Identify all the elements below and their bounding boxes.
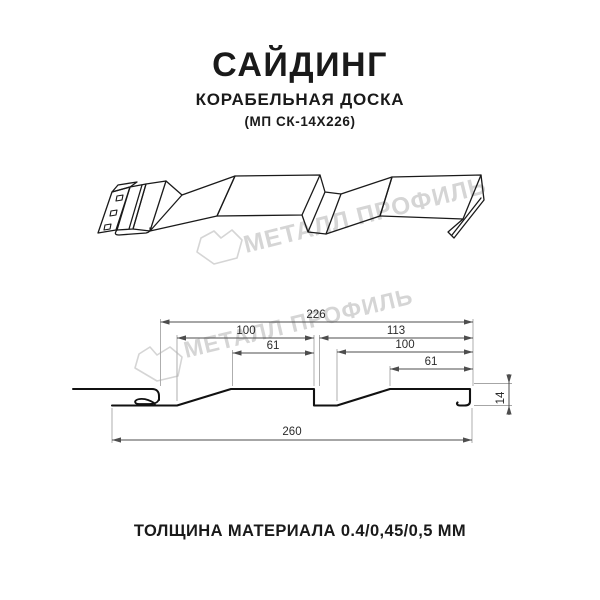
label-board1-100: 100 <box>236 325 255 337</box>
panel-outline <box>112 389 470 406</box>
product-subtitle: КОРАБЕЛЬНАЯ ДОСКА <box>0 91 600 108</box>
brand-logo-icon <box>135 347 182 381</box>
watermark-brand-text: МЕТАЛЛ ПРОФИЛЬ <box>181 283 416 363</box>
dimension-lines <box>112 319 512 442</box>
left-flange-line <box>73 389 159 400</box>
label-board1-flat-61: 61 <box>267 340 280 352</box>
dim-total-260 <box>112 437 472 442</box>
label-board2-113: 113 <box>387 325 405 337</box>
product-header: САЙДИНГ КОРАБЕЛЬНАЯ ДОСКА (МП СК-14Х226) <box>0 48 600 129</box>
label-height-14: 14 <box>495 391 507 404</box>
left-lock-curl <box>135 398 159 405</box>
material-thickness-note: ТОЛЩИНА МАТЕРИАЛА 0.4/0,45/0,5 ММ <box>0 522 600 541</box>
product-model-code: (МП СК-14Х226) <box>0 115 600 129</box>
lock-to-panel-edge <box>166 181 182 195</box>
brand-logo-icon <box>197 230 242 264</box>
label-coverage-226: 226 <box>306 309 325 321</box>
board1-top-face <box>217 175 320 216</box>
cross-section-profile <box>73 389 470 406</box>
product-drawing-page: САЙДИНГ КОРАБЕЛЬНАЯ ДОСКА (МП СК-14Х226)… <box>0 0 600 600</box>
label-board2-100: 100 <box>395 339 414 351</box>
flange-perforation-holes <box>104 195 123 230</box>
dim-height-14 <box>506 374 511 415</box>
label-total-260: 260 <box>282 426 301 438</box>
lock-fold-wide <box>133 181 166 231</box>
lock-fold <box>117 184 146 230</box>
page-title: САЙДИНГ <box>0 48 600 82</box>
label-board2-flat-61: 61 <box>425 356 438 368</box>
